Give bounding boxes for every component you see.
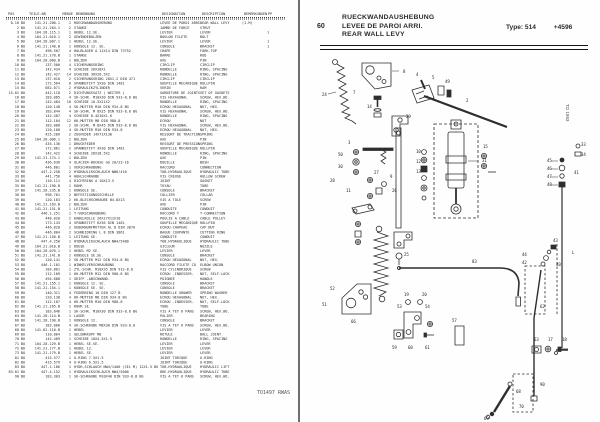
callout-label: 53: [397, 304, 402, 309]
cell-description-en: SCREW, HEX.HD.: [200, 374, 242, 379]
column-header: POS: [6, 12, 29, 17]
column-header: DESIGNATION: [162, 12, 202, 17]
type-suffix: +4596: [554, 24, 573, 31]
diagonal-link-bottom: [486, 382, 512, 419]
header-rule: [6, 17, 286, 20]
callout-label: 4: [416, 72, 419, 77]
callout-label: 9: [390, 174, 393, 179]
drawing-reference: TO 1993: [565, 104, 570, 122]
parts-list-page: POSTEILE-NRMENGEBENENNUNGDESIGNATIONDESC…: [6, 12, 298, 394]
cell-pp: [262, 374, 274, 379]
callout-label: 47: [547, 174, 552, 179]
callout-label: 15: [483, 144, 488, 149]
bolt-stack: [374, 96, 381, 117]
table-header-row: POSTEILE-NRMENGEBENENNUNGDESIGNATIONDESC…: [6, 12, 286, 17]
callout-label: 31: [482, 158, 487, 163]
page-divider: [298, 0, 300, 422]
callout-label: 54: [425, 304, 430, 309]
column-header: PP: [264, 12, 276, 17]
callout-label: 66: [351, 319, 356, 324]
callout-label: 50: [338, 152, 343, 157]
title-german: RUECKWANDAUSHEBUNG: [342, 14, 434, 23]
table-body: 0.10BO141.21.200.11RUECKWANDAUSHEBUNGLEV…: [6, 21, 286, 379]
callout-label: 20: [422, 292, 427, 297]
column-header: DESCRIPTION: [202, 12, 244, 17]
callout-label: 57: [452, 318, 457, 323]
callout-labels: 2487143503028112726299251012133115245496…: [322, 69, 586, 421]
callout-label: 14: [367, 104, 372, 109]
page-footer-code: TO1497 RWAS: [210, 390, 290, 396]
callout-label: 17: [548, 337, 553, 342]
column-header: BEMERKUNGEN: [244, 12, 264, 17]
callout-label: 63: [534, 337, 539, 342]
plate-part: [455, 326, 464, 345]
cell-remark: [242, 374, 262, 379]
parts-table: POSTEILE-NRMENGEBENENNUNGDESIGNATIONDESC…: [6, 12, 286, 379]
catalog-spread: POSTEILE-NRMENGEBENENNUNGDESIGNATIONDESC…: [0, 0, 600, 422]
bracket-plate-top: [362, 63, 391, 89]
exploded-diagram: TO 1993 24871435030281127262992510121331…: [304, 56, 596, 422]
callout-label: 29: [406, 114, 411, 119]
callout-label: 5: [432, 75, 435, 80]
lift-link-bar: [394, 128, 412, 270]
cell-pos: 90: [6, 374, 19, 379]
hydraulic-hose: [398, 267, 521, 307]
callout-label: 44: [522, 252, 527, 257]
callout-label: 51: [322, 302, 327, 307]
callout-label: 70: [519, 404, 524, 409]
type-designation: Type: 514 +4596: [506, 24, 572, 31]
title-french: LEVEE DE PAROI ARRI.: [342, 23, 434, 32]
callout-label: 59: [392, 345, 397, 350]
callout-label: 13: [416, 169, 421, 174]
type-label: Type: 514: [506, 24, 536, 31]
callout-label: 90: [540, 382, 545, 387]
callout-label: 24: [322, 92, 327, 97]
cell-qty: 1: [60, 374, 71, 379]
callout-label: 34: [581, 152, 586, 157]
small-bracket: [392, 116, 408, 136]
callout-label: 43: [553, 238, 558, 243]
bent-rod-lower-right: [531, 245, 556, 401]
callout-label: 42: [522, 260, 527, 265]
callout-label: 18: [562, 337, 567, 342]
column-header: MENGE: [62, 12, 73, 17]
callout-label: 3: [348, 140, 351, 145]
cell-part-number: 183.303: [27, 374, 60, 379]
callout-label: 27: [374, 170, 379, 175]
callout-label: L: [572, 250, 575, 255]
callout-label: 61: [425, 345, 430, 350]
callout-label: 40: [556, 262, 561, 267]
reference-outlines: [513, 244, 557, 412]
callout-label: 12: [416, 159, 421, 164]
callout-label: 46: [547, 166, 552, 171]
column-header: BENENNUNG: [73, 12, 162, 17]
callout-label: 49: [445, 79, 450, 84]
title-english: REAR WALL LEVY: [342, 31, 434, 40]
callout-label: 11: [346, 188, 351, 193]
callout-label: 48: [547, 182, 552, 187]
callout-label: 62: [540, 304, 545, 309]
callout-label: 68: [516, 389, 521, 394]
callout-label: 52: [330, 286, 335, 291]
lever-cluster: [352, 148, 393, 245]
section-title: RUECKWANDAUSHEBUNG LEVEE DE PAROI ARRI. …: [342, 14, 434, 40]
callout-label: 30: [338, 164, 343, 169]
callout-label: 60: [408, 345, 413, 350]
callout-label: 25: [404, 252, 409, 257]
callout-label: 83: [472, 259, 477, 264]
callout-label: 7: [353, 90, 356, 95]
callout-label: 8: [403, 69, 406, 74]
callout-label: 10: [416, 149, 421, 154]
callout-label: 2: [466, 98, 469, 103]
page-number: 60: [317, 23, 325, 30]
callout-label: 19: [404, 292, 409, 297]
table-row: 90BO183.3031SK-SCHRAUBE M10X40 DIN 933-8…: [6, 374, 286, 379]
bracket-bottom-left: [342, 284, 371, 314]
callout-label: 45: [547, 158, 552, 163]
callout-label: 69: [484, 416, 489, 421]
header-double-rule: [320, 45, 588, 50]
cell-name-de: SK-SCHRAUBE M10X40 DIN 933-8.8 BG: [71, 374, 160, 379]
callout-label: 28: [330, 178, 335, 183]
callout-label: 33: [581, 142, 586, 147]
column-header: TEILE-NR: [29, 12, 62, 17]
coil-spring-bottom: [374, 226, 388, 302]
cell-supplier: BO: [19, 374, 27, 379]
cell-designation-fr: VIS A TET 6 PANS: [160, 374, 200, 379]
hydraulic-cylinder: [434, 120, 478, 218]
callout-leader-line: [328, 92, 336, 94]
control-rod-right: [555, 144, 582, 355]
callout-label: 26: [392, 188, 397, 193]
callout-label: 41: [574, 170, 579, 175]
